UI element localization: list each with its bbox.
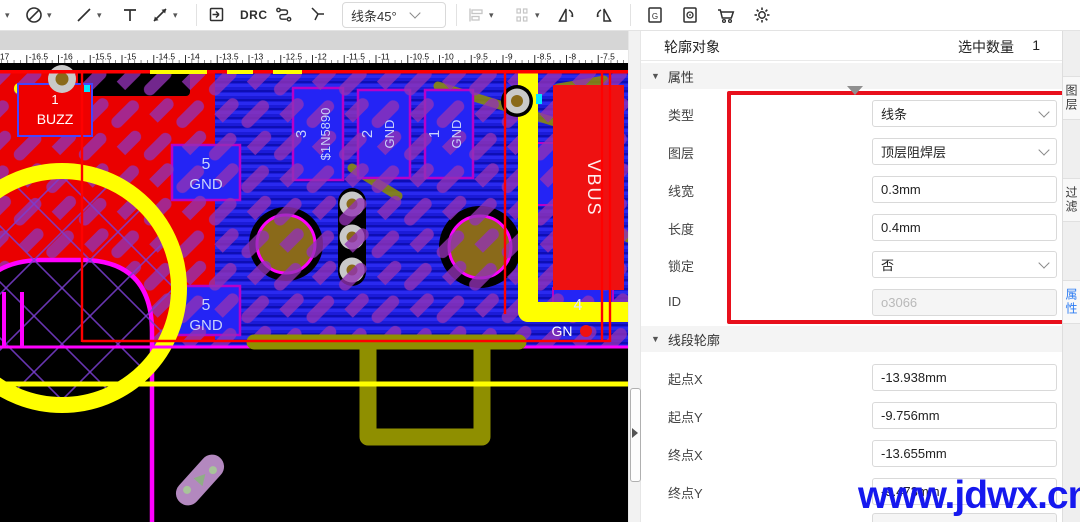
- hidden-tool-caret[interactable]: ▾: [2, 3, 10, 27]
- file-gear-icon: [680, 5, 700, 25]
- svg-text:-14.5: -14.5: [156, 52, 176, 62]
- svg-text:1: 1: [426, 130, 443, 138]
- canvas-top-margin: [0, 30, 628, 50]
- chevron-down-icon: [1038, 257, 1049, 268]
- svg-text:-10.5: -10.5: [410, 52, 430, 62]
- start-y-input[interactable]: [872, 402, 1057, 429]
- svg-text:GN: GN: [552, 323, 573, 339]
- id-input: [872, 289, 1057, 316]
- route-tool-button[interactable]: [274, 3, 296, 27]
- align-left-icon: [466, 5, 486, 25]
- selection-top-line: [0, 70, 628, 74]
- row-length: 长度: [641, 214, 1062, 241]
- top-toolbar: ▾ ▾ ▾ ▾ DRC: [0, 0, 1080, 31]
- flip-horizontal-icon: [556, 5, 578, 25]
- canvas-scrollbar[interactable]: [628, 30, 641, 522]
- gerber-button[interactable]: G: [645, 3, 665, 27]
- row-end-y: 终点Y: [641, 478, 1062, 505]
- row-partial: [641, 513, 1062, 522]
- svg-text:1: 1: [51, 92, 58, 107]
- row-lock: 锁定 否: [641, 251, 1062, 278]
- svg-text:-16: -16: [61, 52, 74, 62]
- svg-text:-12: -12: [315, 52, 328, 62]
- svg-text:-9: -9: [505, 52, 513, 62]
- svg-text:5: 5: [202, 297, 211, 314]
- svg-text:-11.5: -11.5: [346, 52, 365, 62]
- section-header-segment[interactable]: ▼ 线段轮廓: [641, 326, 1062, 352]
- svg-text:5: 5: [202, 156, 211, 173]
- tab-properties[interactable]: 属性: [1063, 280, 1080, 324]
- collapse-triangle-icon: ▼: [651, 71, 660, 81]
- svg-text:GND: GND: [449, 120, 464, 149]
- flip-horizontal-button[interactable]: [556, 3, 578, 27]
- route-wire-icon: [274, 5, 296, 25]
- dimension-arrow-icon: [150, 5, 170, 25]
- flip-vertical-button[interactable]: [592, 3, 614, 27]
- pcb-canvas[interactable]: -17-16.5-16-15.5-15-14.5-14-13.5-13-12.5…: [0, 30, 628, 522]
- right-dock-tabs: 图层 过滤 属性: [1062, 30, 1080, 522]
- toolbar-separator: [456, 4, 457, 26]
- properties-panel: 轮廓对象 选中数量 1 ▼ 属性 类型 线条 图层 顶层阻焊层 线宽 长度 锁定…: [641, 30, 1062, 522]
- type-select[interactable]: 线条: [872, 100, 1057, 127]
- cart-icon: [714, 5, 738, 25]
- toolbar-separator: [630, 4, 631, 26]
- svg-text:3: 3: [293, 130, 310, 138]
- svg-text:4: 4: [574, 297, 583, 314]
- text-T-icon: [120, 5, 140, 25]
- row-line-width: 线宽: [641, 176, 1062, 203]
- svg-text:$1N5890: $1N5890: [318, 108, 333, 161]
- svg-text:-16.5: -16.5: [29, 52, 49, 62]
- toolbar-separator: [196, 4, 197, 26]
- row-end-x: 终点X: [641, 440, 1062, 467]
- annotation-pointer-icon: [847, 86, 863, 95]
- lock-select[interactable]: 否: [872, 251, 1057, 278]
- layer-select[interactable]: 顶层阻焊层: [872, 138, 1057, 165]
- row-id: ID: [641, 289, 1062, 316]
- dimension-tool-button[interactable]: ▾: [150, 3, 178, 27]
- route-mode-dropdown[interactable]: 线条45°: [342, 2, 446, 28]
- svg-text:-11: -11: [378, 52, 390, 62]
- svg-text:GND: GND: [189, 176, 223, 193]
- svg-text:GND: GND: [382, 120, 397, 149]
- end-x-input[interactable]: [872, 440, 1057, 467]
- net-tool-button[interactable]: [308, 3, 328, 27]
- row-start-y: 起点Y: [641, 402, 1062, 429]
- start-x-input[interactable]: [872, 364, 1057, 391]
- line-tool-button[interactable]: ▾: [74, 3, 102, 27]
- selected-count-value: 1: [1032, 37, 1040, 53]
- distribute-icon: [512, 5, 532, 25]
- drc-button[interactable]: DRC: [240, 3, 268, 27]
- tab-filter[interactable]: 过滤: [1063, 178, 1080, 222]
- settings-button[interactable]: [752, 3, 772, 27]
- collapse-triangle-icon: ▼: [651, 334, 660, 344]
- wire-branch-icon: [308, 5, 328, 25]
- svg-text:-7.5: -7.5: [600, 52, 615, 62]
- partial-input: [872, 513, 1057, 522]
- panel-title: 轮廓对象: [664, 37, 720, 57]
- import-button[interactable]: [206, 3, 226, 27]
- gerber-file-icon: G: [645, 5, 665, 25]
- selected-count-label: 选中数量: [958, 37, 1014, 57]
- order-cart-button[interactable]: [714, 3, 738, 27]
- line-width-input[interactable]: [872, 176, 1057, 203]
- svg-text:-9.5: -9.5: [473, 52, 488, 62]
- svg-text:-8.5: -8.5: [537, 52, 552, 62]
- row-layer: 图层 顶层阻焊层: [641, 138, 1062, 165]
- svg-text:BUZZ: BUZZ: [37, 111, 74, 127]
- import-icon: [206, 5, 226, 25]
- distribute-button[interactable]: ▾: [512, 3, 540, 27]
- tab-layers[interactable]: 图层: [1063, 76, 1080, 120]
- svg-text:G: G: [652, 12, 658, 21]
- pad-dot: [580, 325, 592, 337]
- svg-text:-13: -13: [251, 52, 264, 62]
- chevron-down-icon: [1038, 144, 1049, 155]
- length-input[interactable]: [872, 214, 1057, 241]
- text-tool-button[interactable]: [120, 3, 140, 27]
- svg-text:-8: -8: [569, 52, 577, 62]
- circle-slash-icon: [24, 5, 44, 25]
- row-type: 类型 线条: [641, 100, 1062, 127]
- svg-text:-13.5: -13.5: [219, 52, 239, 62]
- svg-text:-10: -10: [442, 52, 455, 62]
- chevron-down-icon: [1038, 106, 1049, 117]
- gear-icon: [752, 5, 772, 25]
- chevron-down-icon: [409, 7, 420, 18]
- svg-text:-15.5: -15.5: [92, 52, 112, 62]
- line-icon: [74, 5, 94, 25]
- align-button[interactable]: ▾: [466, 3, 494, 27]
- svg-text:2: 2: [359, 130, 376, 138]
- end-y-input[interactable]: [872, 478, 1057, 505]
- svg-text:-14: -14: [188, 52, 201, 62]
- route-mode-value: 线条45°: [351, 6, 397, 25]
- keepout-tool-button[interactable]: ▾: [24, 3, 52, 27]
- flip-vertical-icon: [592, 5, 614, 25]
- panel-header: 轮廓对象 选中数量 1: [641, 30, 1062, 61]
- svg-text:GND: GND: [189, 317, 223, 334]
- svg-text:-17: -17: [0, 52, 10, 62]
- panel-collapse-arrow-icon[interactable]: [632, 428, 638, 438]
- svg-text:-12.5: -12.5: [283, 52, 303, 62]
- fabrication-file-button[interactable]: [680, 3, 700, 27]
- svg-text:-15: -15: [124, 52, 137, 62]
- row-start-x: 起点X: [641, 364, 1062, 391]
